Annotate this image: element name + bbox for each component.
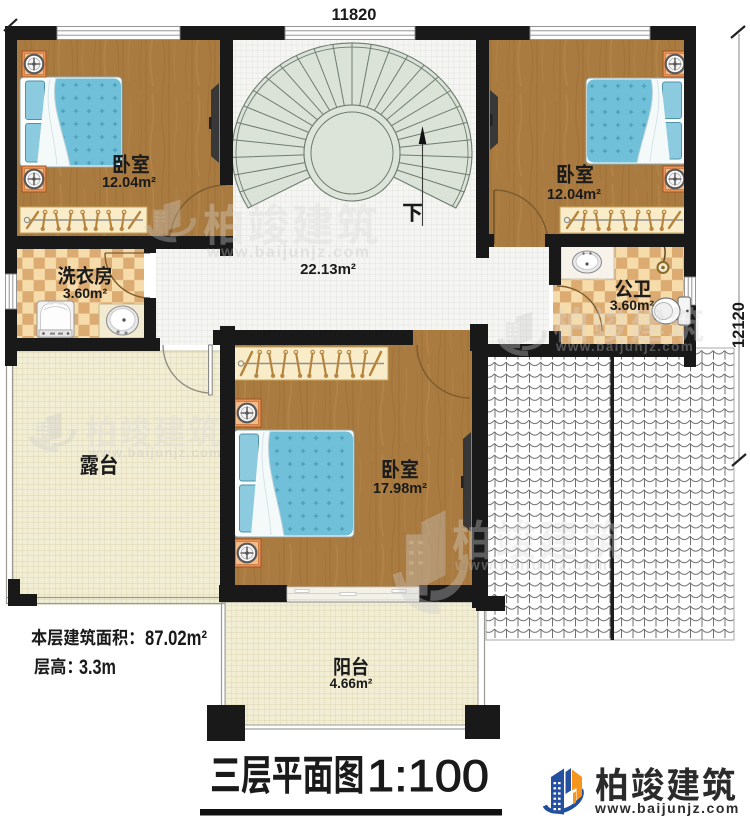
svg-text:www.baijunjz.com: www.baijunjz.com: [454, 557, 608, 574]
svg-text:12.04m²: 12.04m²: [547, 187, 601, 203]
svg-text:3.3m: 3.3m: [79, 656, 116, 679]
svg-text:3.60m²: 3.60m²: [63, 285, 108, 301]
svg-text:4.66m²: 4.66m²: [330, 676, 373, 691]
svg-text:11820: 11820: [332, 6, 377, 24]
svg-text:12120: 12120: [730, 302, 748, 348]
svg-text:1:100: 1:100: [367, 752, 489, 801]
svg-text:www.baijunjz.com: www.baijunjz.com: [555, 339, 694, 354]
svg-text:17.98m²: 17.98m²: [373, 481, 427, 497]
svg-text:87.02m²: 87.02m²: [145, 627, 207, 650]
svg-text:3.60m²: 3.60m²: [610, 297, 655, 313]
svg-text:www.baijunjz.com: www.baijunjz.com: [206, 244, 371, 261]
svg-text:22.13m²: 22.13m²: [300, 261, 356, 278]
svg-text:12.04m²: 12.04m²: [102, 175, 156, 191]
svg-text:www.baijunjz.com: www.baijunjz.com: [88, 445, 222, 460]
svg-text:www.baijunjz.com: www.baijunjz.com: [594, 800, 740, 816]
